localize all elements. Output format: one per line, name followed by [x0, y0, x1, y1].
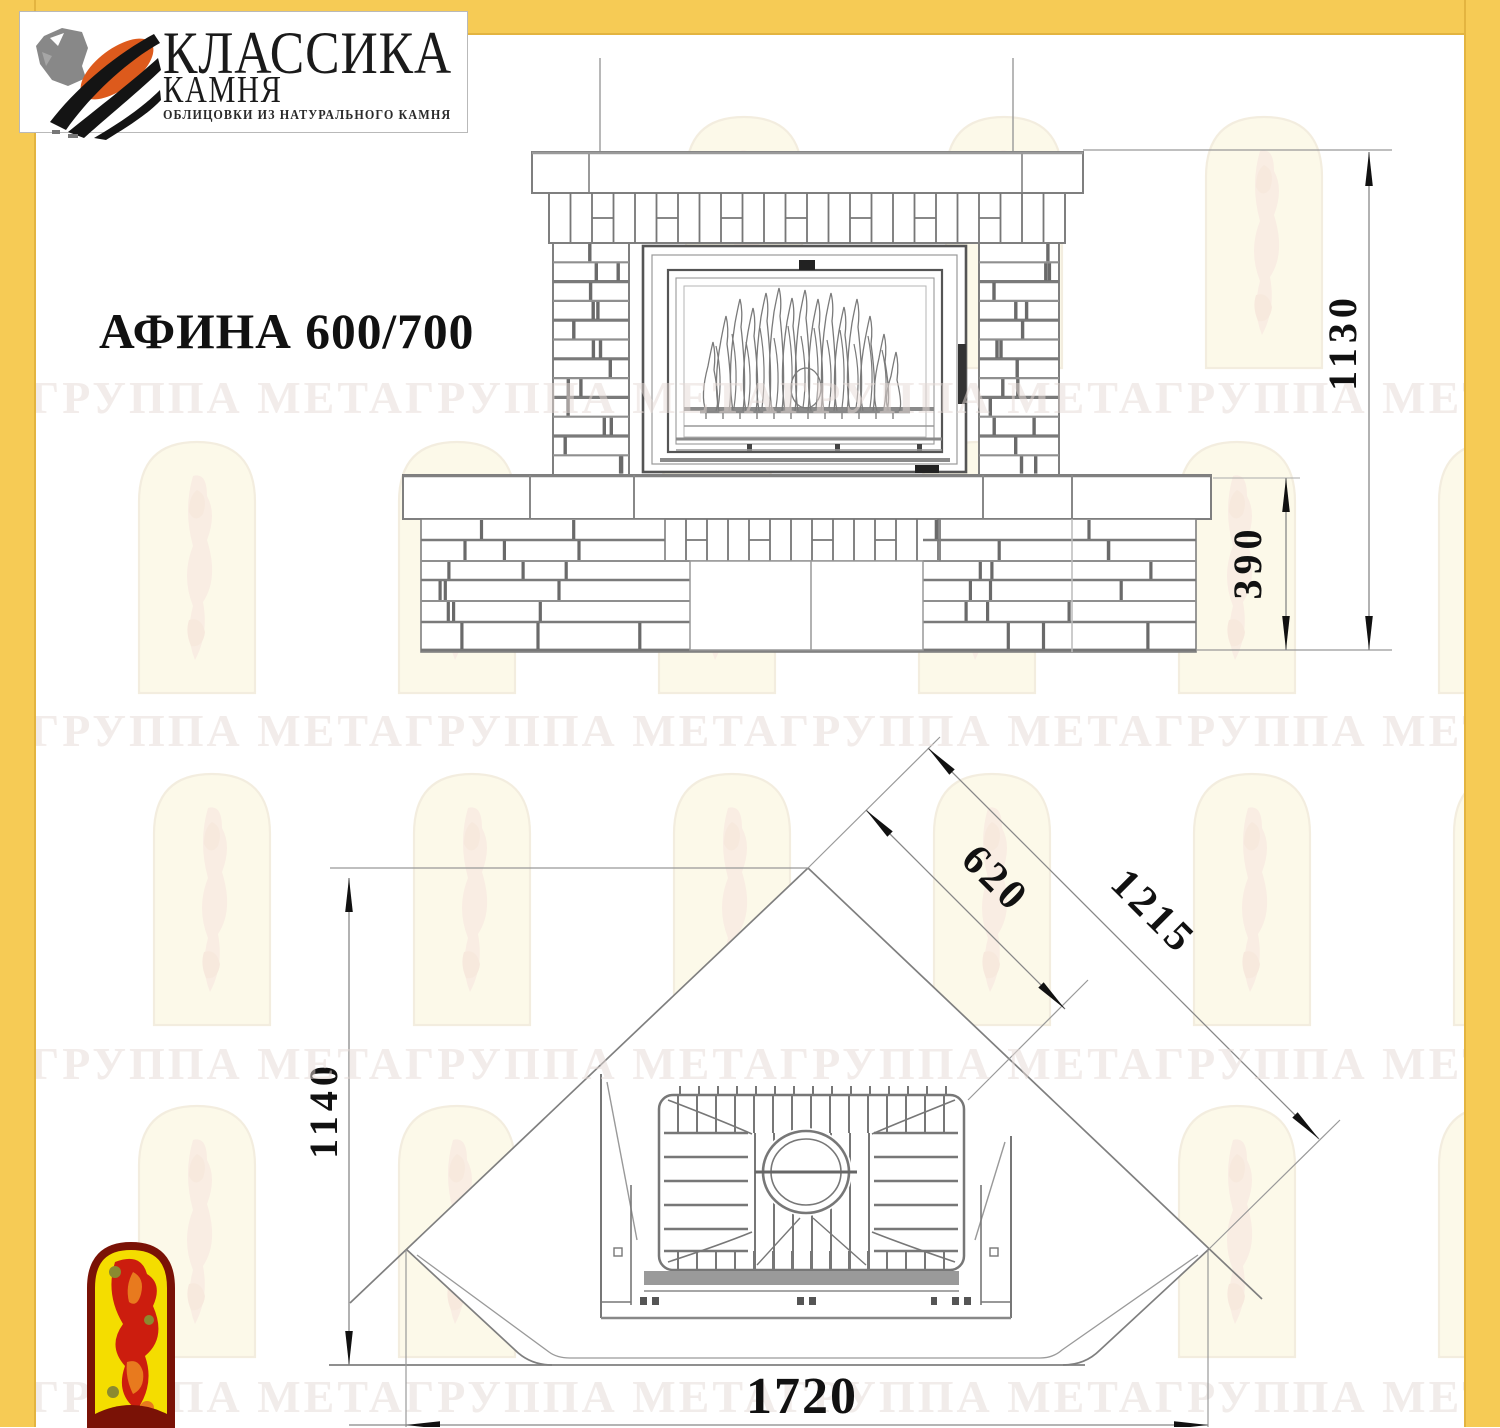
svg-text:ГРУППА МЕТАГРУППА МЕТАГРУППА М: ГРУППА МЕТАГРУППА МЕТАГРУППА МЕТАГРУППА … — [30, 1038, 1500, 1089]
svg-text:1215: 1215 — [1102, 860, 1205, 963]
svg-text:1720: 1720 — [746, 1368, 858, 1425]
svg-text:390: 390 — [1225, 525, 1270, 600]
svg-text:ГРУППА МЕТАГРУППА МЕТАГРУППА М: ГРУППА МЕТАГРУППА МЕТАГРУППА МЕТАГРУППА … — [30, 705, 1500, 756]
svg-text:ГРУППА МЕТАГРУППА МЕТАГРУППА М: ГРУППА МЕТАГРУППА МЕТАГРУППА МЕТАГРУППА … — [30, 372, 1500, 423]
